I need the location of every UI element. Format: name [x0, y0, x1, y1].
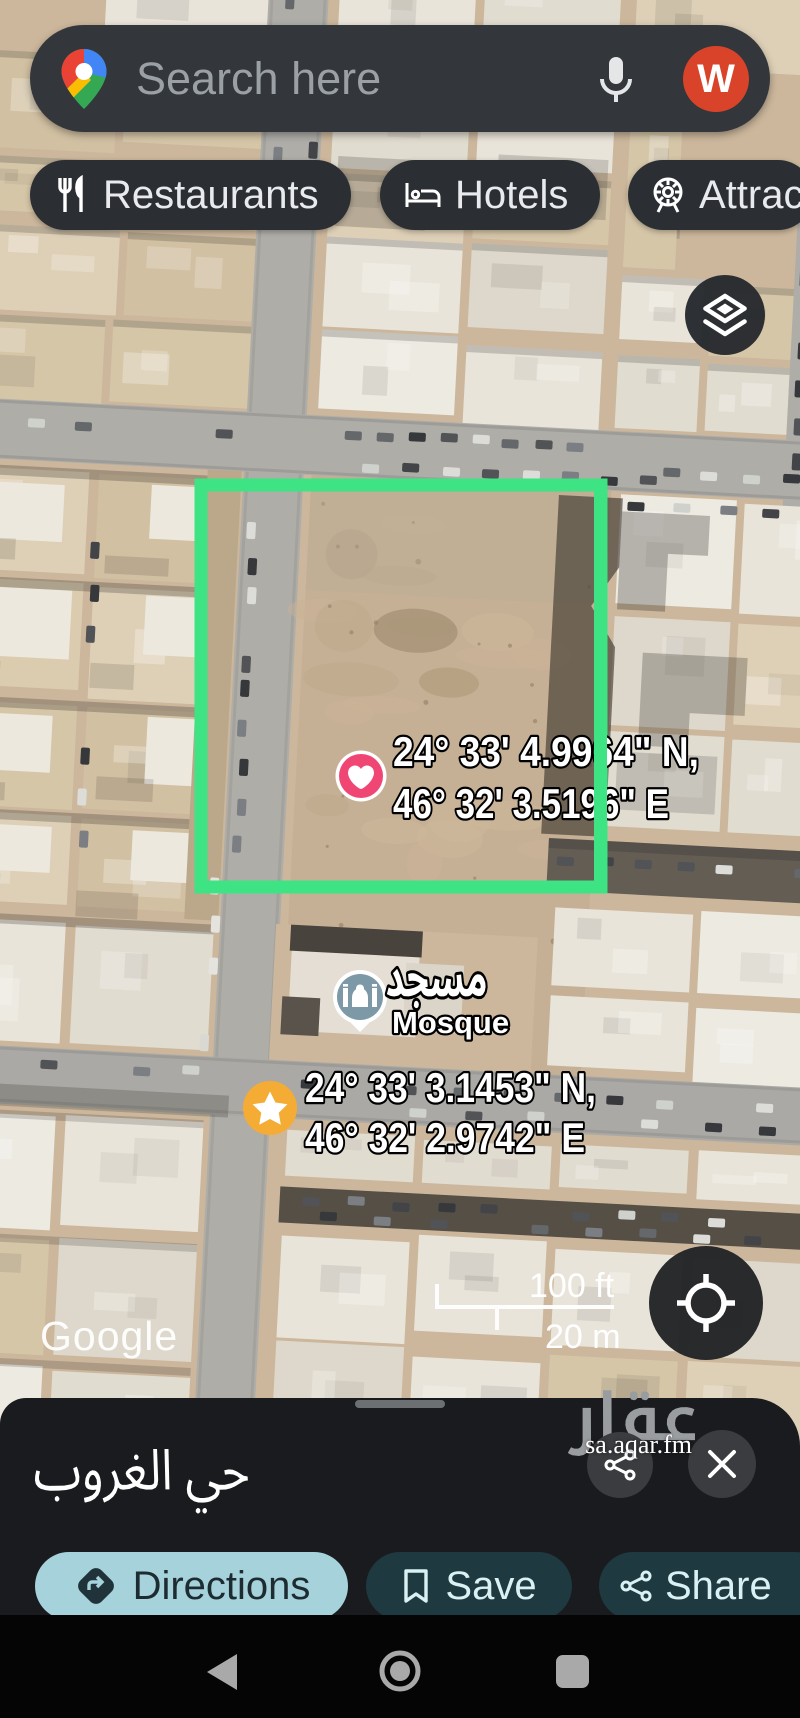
svg-text:20 m: 20 m — [545, 1318, 621, 1356]
svg-text:Google: Google — [40, 1313, 178, 1359]
svg-text:24° 33' 3.1453" N,: 24° 33' 3.1453" N, — [305, 1064, 596, 1111]
svg-text:100 ft: 100 ft — [529, 1267, 615, 1305]
svg-text:46° 32' 2.9742" E: 46° 32' 2.9742" E — [305, 1114, 585, 1161]
svg-text:Mosque: Mosque — [392, 1005, 509, 1040]
svg-text:46° 32' 3.5196" E: 46° 32' 3.5196" E — [393, 780, 669, 827]
svg-text:24° 33' 4.9964" N,: 24° 33' 4.9964" N, — [393, 728, 699, 775]
